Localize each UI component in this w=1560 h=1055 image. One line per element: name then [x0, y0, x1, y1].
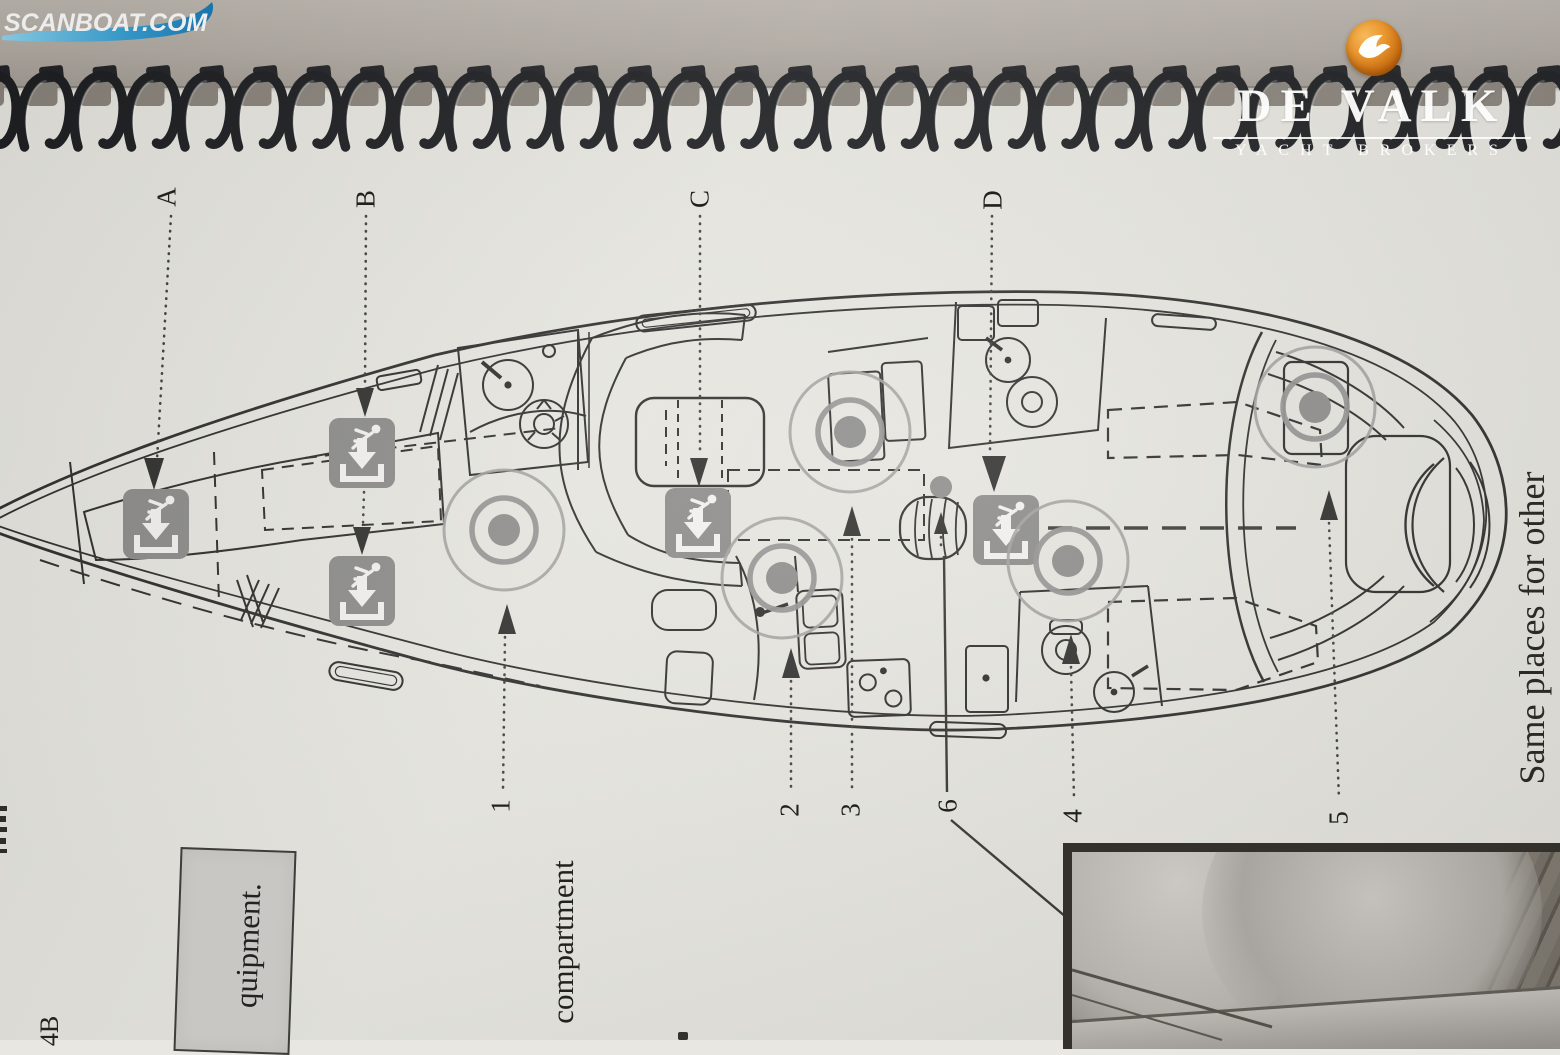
engine-compartment — [900, 497, 966, 559]
galley — [736, 556, 911, 717]
note-same-places: Same places for other — [1511, 472, 1553, 785]
escape-hatch-icon-A — [123, 489, 189, 559]
forward-head — [458, 330, 588, 475]
interior-photo-inset — [1063, 843, 1560, 1049]
number-label-1: 1 — [486, 799, 517, 813]
safety-point-marker-6 — [930, 476, 952, 498]
escape-hatch-icon-C — [665, 488, 731, 558]
note-compartment: compartment — [545, 860, 581, 1024]
number-label-6: 6 — [933, 799, 964, 813]
callout-label-C: C — [685, 190, 716, 208]
number-label-4: 4 — [1058, 809, 1089, 823]
number-label-2: 2 — [775, 803, 806, 817]
brand-divider — [1213, 137, 1531, 139]
aft-head — [966, 586, 1162, 712]
escape-hatch-icon-B1 — [329, 418, 395, 488]
safety-point-marker-2 — [722, 518, 842, 638]
cockpit — [1226, 332, 1489, 682]
mid-head — [949, 300, 1106, 448]
escape-hatch-icon-D — [973, 495, 1039, 565]
callout-label-D: D — [978, 190, 1009, 210]
callout-label-B: B — [351, 190, 382, 208]
escape-hatch-icons — [123, 418, 1039, 626]
brand-name: DE VALK — [1198, 76, 1546, 136]
note-corner: 4B — [35, 1016, 65, 1046]
safety-point-marker-1 — [444, 470, 564, 590]
brand-tagline: YACHT BROKERS — [1198, 142, 1546, 160]
number-label-5: 5 — [1324, 811, 1355, 825]
number-label-3: 3 — [836, 803, 867, 817]
escape-hatch-icon-B2 — [329, 556, 395, 626]
deck-hatches — [328, 304, 1216, 739]
safety-point-marker-3 — [790, 372, 910, 492]
edge-print-fragments — [0, 806, 688, 1040]
falcon-logo-icon — [1346, 20, 1402, 76]
callout-label-A: A — [152, 187, 183, 207]
note-equipment: quipment. — [228, 882, 268, 1008]
brand-logo: DE VALK YACHT BROKERS — [1198, 76, 1546, 160]
equipment-note-box: quipment. — [173, 847, 296, 1055]
binding-slot — [0, 80, 4, 106]
safety-point-marker-5 — [1255, 347, 1375, 467]
